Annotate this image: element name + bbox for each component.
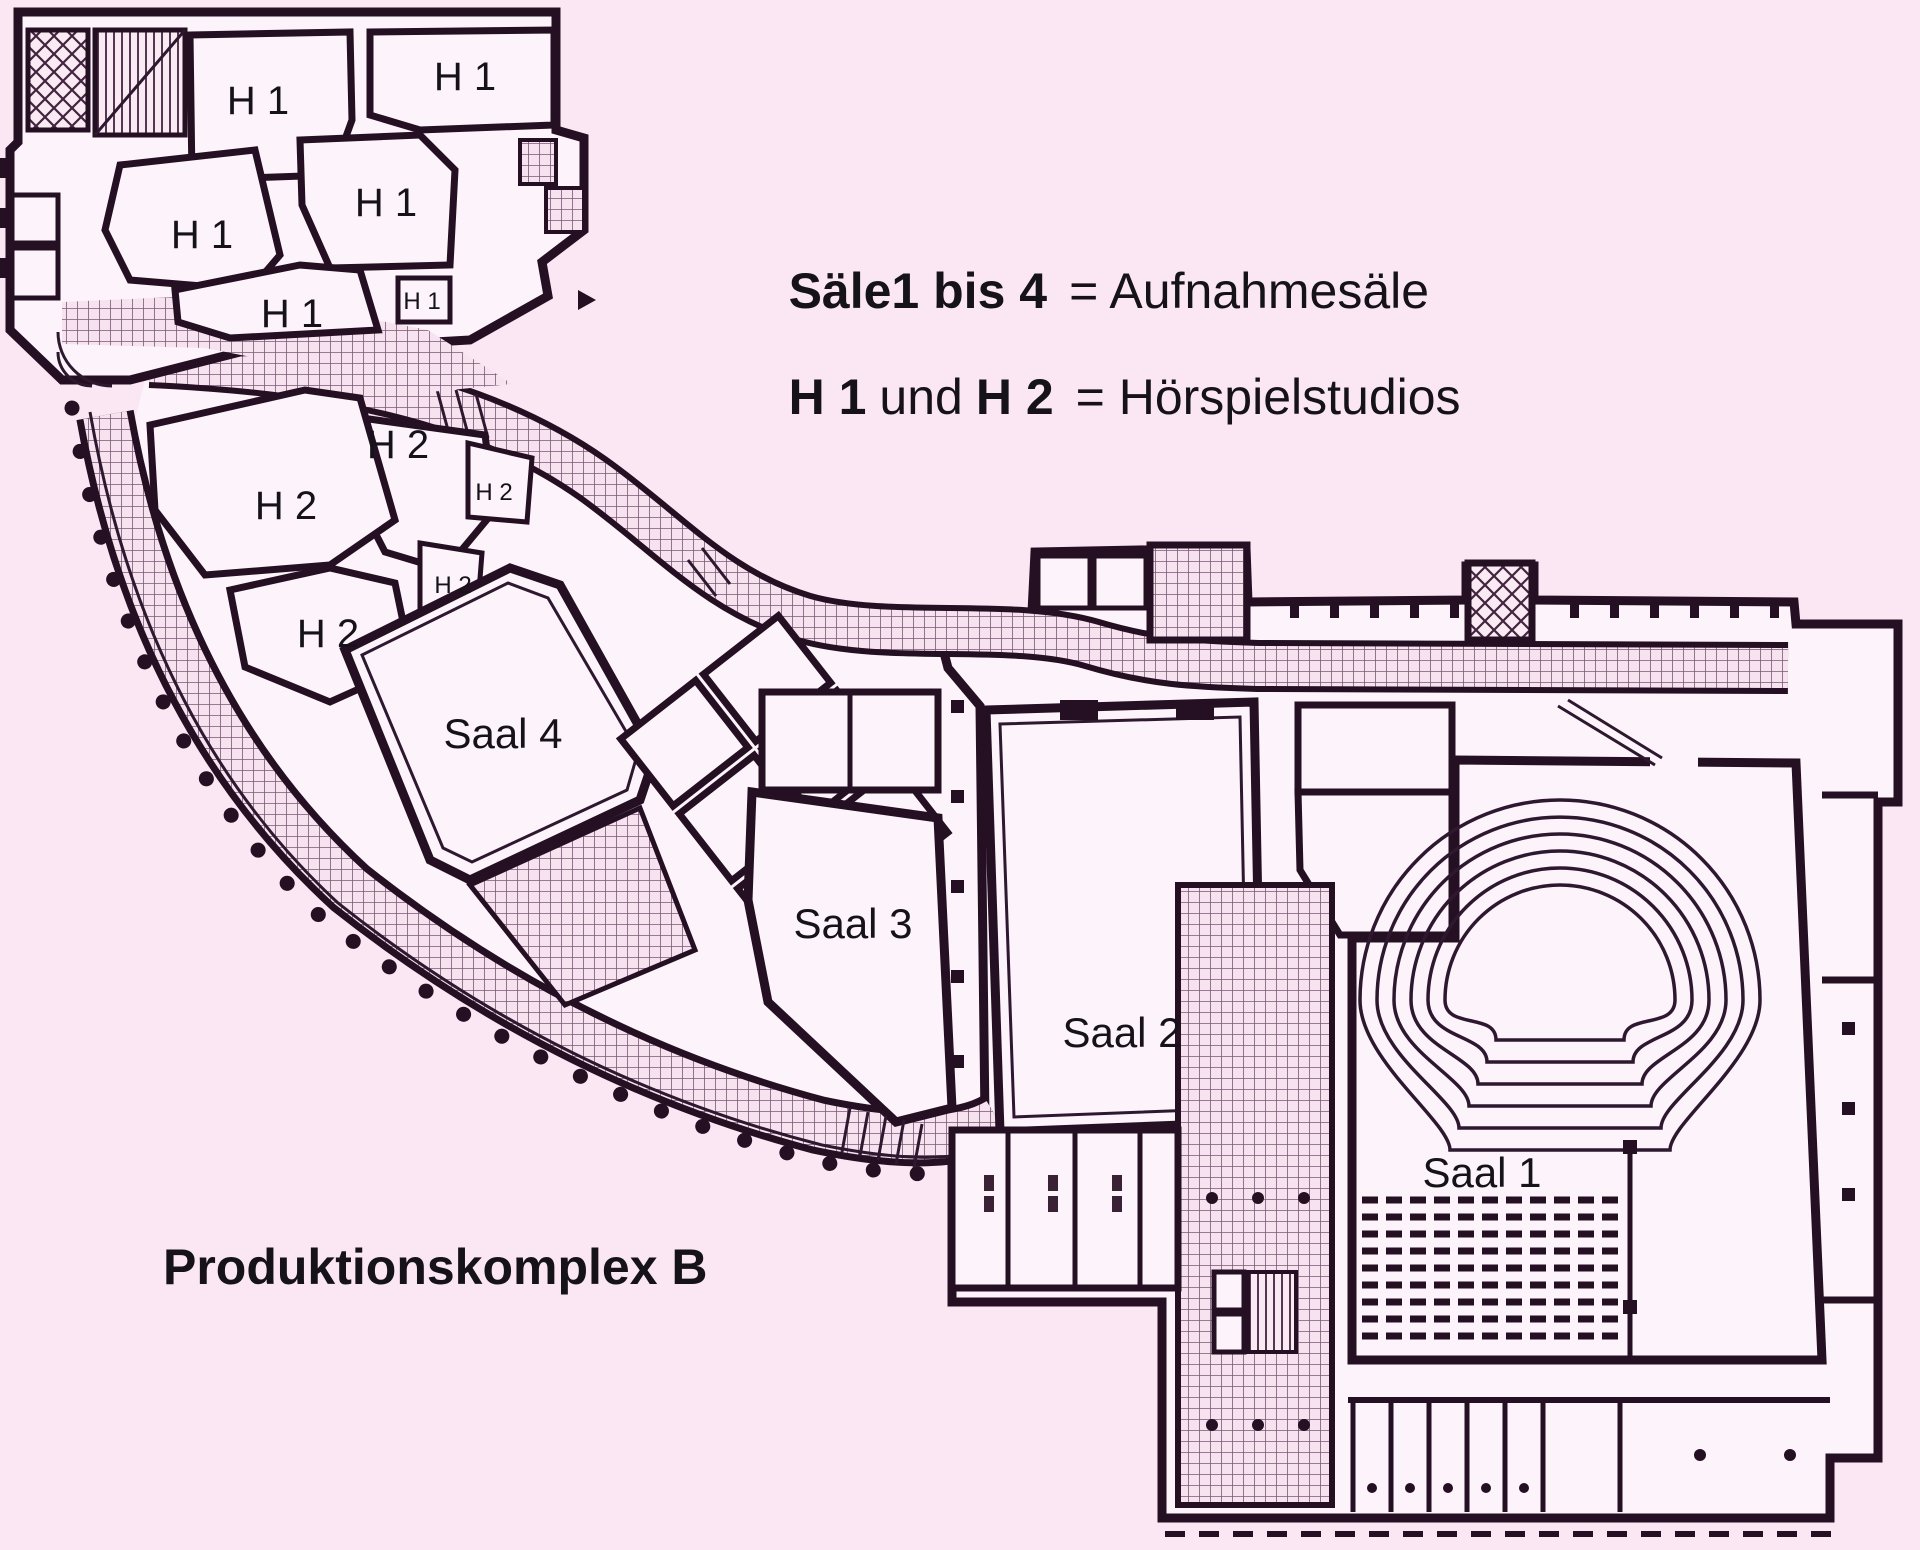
room-label-saal-4: Saal 4 [443, 710, 562, 757]
room-label-h2-5: H 2 [297, 612, 359, 656]
room-h2-left [150, 390, 395, 575]
floor-plan-page: Saal 1 Saal 2 Saal 3 Saal 4 H 1 H 1 H 1 … [0, 0, 1920, 1550]
room-label-h1-3: H 1 [355, 181, 417, 225]
room-label-h2-3: H 2 [475, 479, 512, 506]
foyer [1178, 885, 1332, 1505]
room-label-h1-1: H 1 [227, 79, 289, 123]
room-label-h2-1: H 2 [367, 423, 429, 467]
room-label-saal-2: Saal 2 [1062, 1009, 1181, 1056]
room-label-saal-3: Saal 3 [793, 900, 912, 947]
plan-title: Produktionskomplex B [163, 1238, 708, 1296]
room-label-h1-4: H 1 [171, 213, 233, 257]
room-label-h2-2: H 2 [255, 484, 317, 528]
room-label-h1-2: H 1 [434, 55, 496, 99]
room-label-h1-5: H 1 [261, 292, 323, 336]
room-a [1298, 705, 1452, 792]
room-label-h2-4: H 2 [434, 572, 471, 599]
legend-line1-bold: Säle1 bis 4 [789, 263, 1048, 319]
foyer-stair [1248, 1272, 1296, 1352]
legend-line2-bold1: H 1 [789, 369, 867, 425]
legend-line2-rest: = Hörspielstudios [1076, 369, 1461, 425]
room-label-saal-1: Saal 1 [1422, 1149, 1541, 1196]
legend-line1-rest: = Aufnahmesäle [1069, 263, 1429, 319]
legend-line2-mid: und [879, 369, 962, 425]
seating-rows [1362, 1200, 1622, 1336]
stage-tower-crosshatch [1468, 563, 1532, 640]
north-connector-hatch [1150, 545, 1247, 640]
stair-shaft-crosshatch [28, 30, 88, 130]
legend-line-2: H 1undH 2= Hörspielstudios [733, 318, 1461, 476]
legend-line2-bold2: H 2 [976, 369, 1054, 425]
wc-block [952, 1130, 1178, 1288]
room-label-h1-6: H 1 [403, 288, 440, 315]
